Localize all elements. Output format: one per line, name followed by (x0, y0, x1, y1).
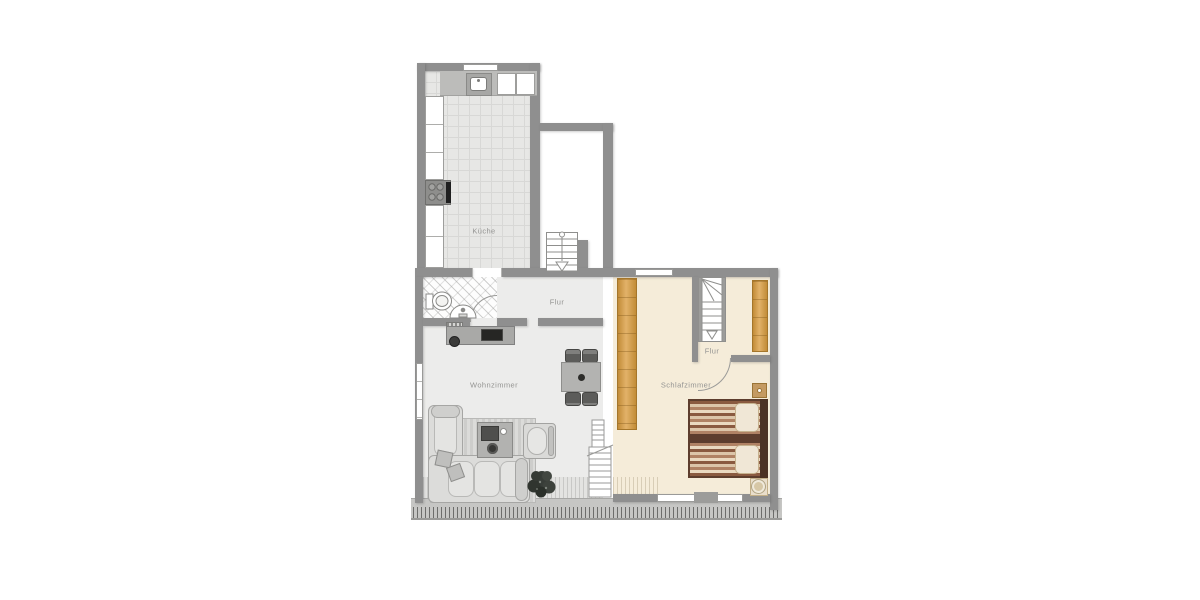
plant (528, 471, 556, 498)
staircase-main (547, 232, 578, 271)
ladder-stair (587, 420, 613, 497)
toilet (426, 292, 452, 310)
floor-plan: Küche Flur Wohnzimmer Schlafzimmer Flur (0, 0, 1200, 600)
stove-burners (429, 184, 443, 200)
washbasin (450, 305, 476, 318)
staircase-bedroom (699, 278, 726, 342)
plan-linework (0, 0, 1200, 600)
